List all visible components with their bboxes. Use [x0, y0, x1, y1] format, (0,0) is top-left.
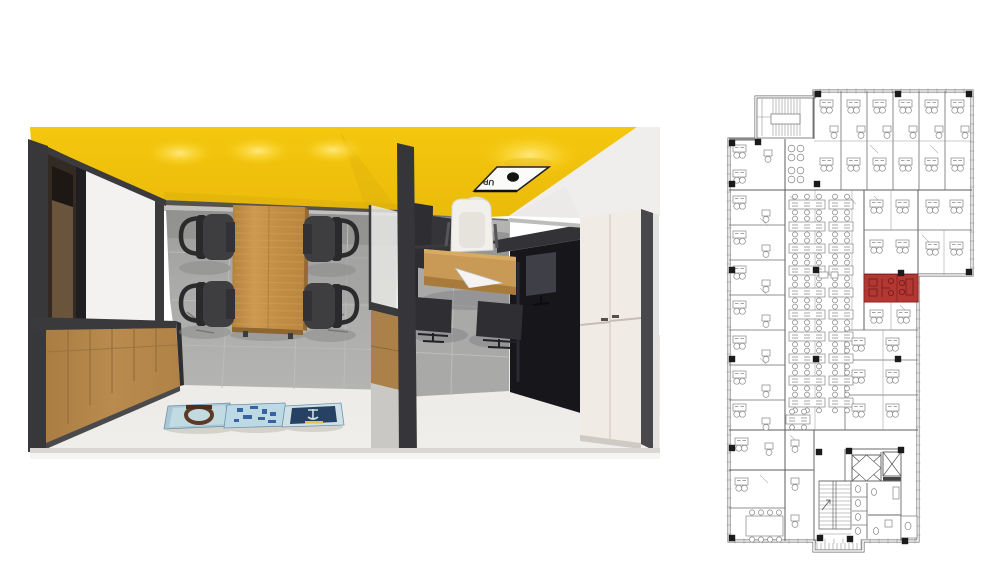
- svg-text:UP: UP: [482, 177, 495, 187]
